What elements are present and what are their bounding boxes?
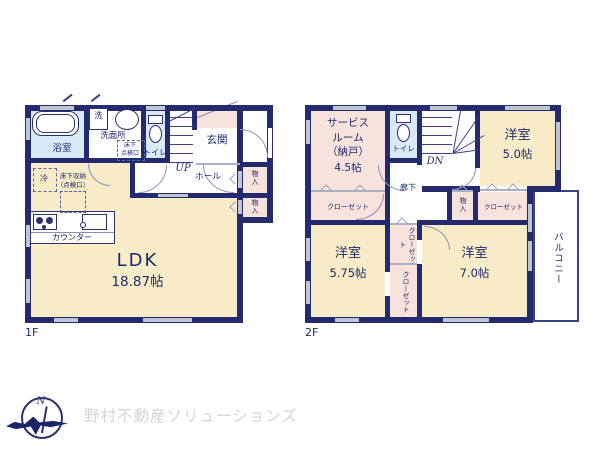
window-1f-left-bath	[26, 118, 30, 140]
label-floor-1f: 1F	[25, 326, 49, 340]
wall-closet-left-bottom	[305, 220, 388, 225]
label-closet-mid-upper: クローゼット	[392, 227, 416, 262]
stair-tread-2f-5	[422, 153, 452, 154]
vent-mark-1	[63, 94, 73, 102]
window-2f-top-room5	[505, 106, 550, 110]
label-bath: 浴室	[42, 143, 82, 155]
label-entrance: 玄関	[198, 134, 236, 147]
label-toilet-1f: トイレ	[141, 148, 169, 158]
window-2f-top-service	[333, 106, 366, 110]
window-1f-top-bath	[40, 106, 74, 110]
label-service-name: サービス ルーム （納戸）	[311, 116, 385, 160]
label-underfloor-storage: 床下収納 （点検口）	[54, 172, 92, 190]
label-storage-2f: 物入	[458, 197, 468, 214]
wall-corridor-bottom	[417, 220, 533, 225]
front-door-arc	[240, 129, 268, 157]
stair-tread-2f-1	[422, 117, 452, 118]
entrance-porch	[196, 110, 238, 128]
label-ldk-size: 18.87帖	[65, 274, 210, 291]
window-1f-left-ldk	[26, 279, 30, 303]
toilet-bowl-1f-icon	[149, 125, 162, 143]
label-closet-left: クローゼット	[313, 203, 383, 212]
wall-storage-divider-1f	[243, 193, 267, 198]
burner-icon-2	[46, 217, 53, 224]
stair-tread-1f-2	[170, 126, 193, 127]
toilet-bowl-2f-icon	[397, 124, 410, 142]
label-washer: 洗	[90, 111, 107, 121]
label-washroom: 洗面所	[88, 131, 138, 142]
faucet-icon	[80, 222, 86, 228]
label-closet-mid-lower: クローゼット	[398, 270, 410, 314]
window-2f-left-service	[306, 120, 310, 144]
front-door-gap	[268, 128, 272, 158]
door-gap-575	[385, 272, 390, 296]
burner-icon-1	[36, 217, 43, 224]
window-1f-top-toilet	[146, 106, 165, 110]
burner-icon-3	[42, 225, 46, 229]
label-storage-lower-1f: 物入	[250, 199, 260, 216]
label-corridor: 廊下	[390, 183, 426, 193]
label-floor-2f: 2F	[305, 326, 331, 340]
label-underfloor-hatch: 床下 点検口	[118, 142, 142, 158]
label-toilet-2f: トイレ	[390, 144, 417, 153]
balcony-door-2	[528, 241, 532, 271]
label-counter: カウンター	[38, 233, 106, 243]
stair-tread-2f-4	[422, 144, 452, 145]
sliding-door-hall-ldk	[158, 194, 188, 197]
wall-toilet2-bottom	[385, 158, 422, 163]
vent-mark-2	[91, 94, 101, 102]
wall-b	[130, 158, 135, 198]
label-storage-upper-1f: 物入	[250, 170, 260, 187]
wall-1f-right-lower	[237, 217, 243, 323]
label-service-size: 4.5帖	[311, 162, 385, 175]
label-room7-size: 7.0帖	[422, 266, 527, 280]
label-room5-name: 洋室	[480, 128, 555, 144]
stair-tread-2f-3	[422, 135, 452, 136]
washbasin-icon	[115, 109, 139, 130]
wall-bathrow-bottom	[25, 158, 170, 163]
company-name: 野村不動産ソリューションズ	[84, 407, 364, 426]
window-2f-bottom-room7	[443, 318, 489, 322]
bathtub-inner-icon	[36, 114, 75, 133]
underfloor-storage-box	[60, 191, 86, 213]
label-stairs-dn: DN	[422, 156, 448, 169]
hall-ldk-door-arc	[139, 165, 167, 193]
window-2f-left-575a	[306, 238, 310, 261]
toilet-tank-1f-icon	[148, 115, 163, 124]
wall-alcove-bottom	[243, 162, 267, 167]
window-2f-left-575b	[306, 281, 310, 304]
wall-1f-ext-right	[267, 105, 273, 223]
window-2f-top-stairs	[430, 106, 457, 110]
toilet-tank-2f-icon	[396, 114, 411, 123]
label-room7-name: 洋室	[422, 246, 527, 262]
window-1f-bottom-small	[54, 318, 78, 322]
floorplan-canvas: 浴室 洗 洗面所 床下 点検口 トイレ UP 玄関 ホール 物入 物入 冷 床下…	[0, 0, 600, 450]
window-2f-right-room5	[556, 122, 560, 170]
stair-tread-1f-4	[170, 144, 193, 145]
label-ldk-name: LDK	[65, 250, 210, 273]
stair-tread-2f-2	[422, 126, 452, 127]
label-room5-size: 5.0帖	[480, 147, 555, 161]
stair-tread-1f-3	[170, 135, 193, 136]
label-balcony: バルコニー	[549, 222, 563, 294]
label-room575-name: 洋室	[311, 246, 385, 262]
label-closet-right: クローゼット	[480, 203, 527, 211]
label-fridge: 冷	[36, 174, 52, 184]
label-room575-size: 5.75帖	[311, 266, 385, 280]
kitchen-sink-icon	[82, 214, 107, 230]
balcony-door-1	[528, 204, 532, 232]
closet-mid-lower-top	[390, 263, 417, 265]
wall-1f-ext-bottom	[237, 217, 273, 223]
window-1f-bottom-large	[143, 318, 192, 322]
label-hall: ホール	[188, 172, 228, 183]
window-2f-bottom-575	[335, 318, 359, 322]
stair-tread-1f-5	[170, 153, 193, 154]
